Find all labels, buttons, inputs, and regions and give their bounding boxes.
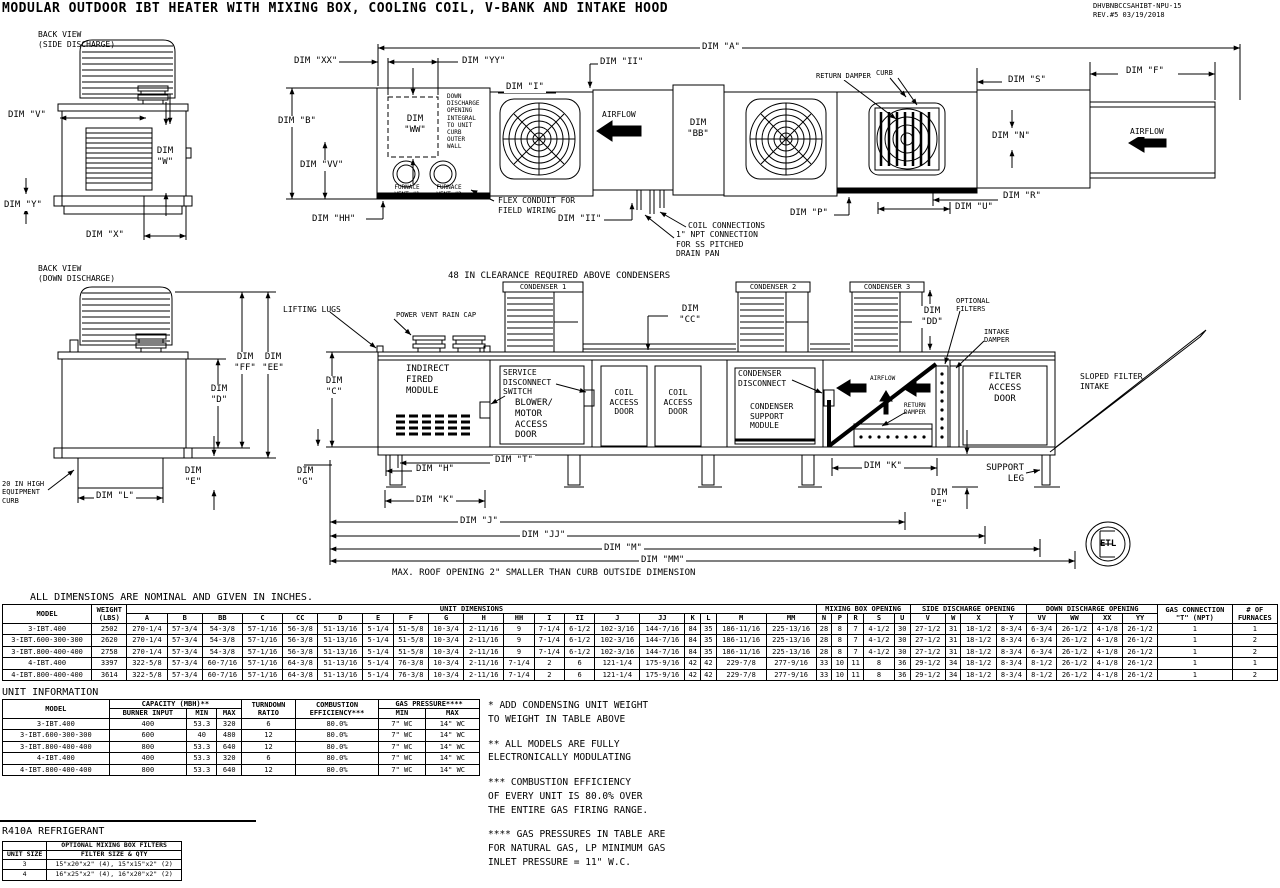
table-cell: 6 [565, 658, 595, 670]
table-cell: 5-1/4 [363, 658, 393, 670]
power-vent-rain-cap-label: POWER VENT RAIN CAP [396, 311, 476, 319]
refrigerant-label: R410A REFRIGERANT [2, 826, 104, 838]
column-header: YY [1122, 614, 1157, 623]
table-cell: 480 [217, 730, 242, 742]
dim-label-i: DIM "I" [504, 82, 546, 93]
table-cell: 26-1/2 [1122, 646, 1157, 658]
table-cell: 84 [685, 623, 701, 635]
table-cell: 8-1/2 [1027, 669, 1057, 681]
column-header: DOWN DISCHARGE OPENING [1027, 605, 1158, 614]
coil-access-door-1-label: COIL ACCESS DOOR [602, 388, 646, 417]
airflow-label-1: AIRFLOW [600, 110, 638, 120]
curb-height-note: 20 IN HIGH EQUIPMENT CURB [2, 480, 44, 505]
column-header: GAS PRESSURE**** [379, 700, 480, 709]
table-cell: 40 [187, 730, 217, 742]
table-cell: 7 [848, 635, 864, 647]
table-cell: 3-IBT.800-400-400 [3, 646, 92, 658]
dim-label-f: DIM "F" [1124, 66, 1166, 77]
npt-connection-note: 1" NPT CONNECTION FOR SS PITCHED DRAIN P… [676, 230, 758, 259]
table-cell: 14" WC [425, 753, 479, 765]
table-cell: 800 [109, 764, 186, 776]
column-header [3, 842, 47, 851]
back-side-view-drawing [26, 40, 192, 240]
dim-label-k-left: DIM "K" [414, 495, 456, 506]
table-cell: 11 [848, 669, 864, 681]
column-header: I [534, 614, 564, 623]
table-cell: 26-1/2 [1057, 646, 1092, 658]
table-cell: 56-3/8 [283, 646, 318, 658]
column-header: MIN [379, 709, 426, 718]
table-cell: 7" WC [379, 730, 426, 742]
dim-label-bb: DIM "BB" [678, 118, 718, 140]
table-cell: 57-1/16 [242, 669, 282, 681]
dim-label-x: DIM "X" [84, 230, 126, 241]
table-cell: 3-IBT.400 [3, 718, 110, 730]
table-cell: 8-3/4 [996, 646, 1026, 658]
column-header: II [565, 614, 595, 623]
table-cell: 277-9/16 [766, 669, 816, 681]
table-cell: 8-1/2 [1027, 658, 1057, 670]
table-cell: 14" WC [425, 718, 479, 730]
airflow-up-arrow-icon [880, 391, 892, 414]
table-cell: 320 [217, 718, 242, 730]
table-cell: 27-1/2 [910, 646, 945, 658]
table-cell: 57-1/16 [242, 635, 282, 647]
table-cell: 7-1/4 [504, 669, 534, 681]
note-3: *** COMBUSTION EFFICIENCY OF EVERY UNIT … [488, 776, 788, 817]
table-cell: 2502 [92, 623, 127, 635]
column-header: WW [1057, 614, 1092, 623]
dim-label-ii-top: DIM "II" [598, 57, 645, 68]
table-cell: 10 [832, 669, 848, 681]
column-header: MAX [425, 709, 479, 718]
table-cell: 270-1/4 [127, 635, 167, 647]
column-header: E [363, 614, 393, 623]
dim-label-d: DIM "D" [202, 384, 236, 406]
table-cell: 322-5/8 [127, 658, 167, 670]
table-cell: 3 [3, 859, 47, 870]
table-cell: 1 [1232, 658, 1277, 670]
sloped-filter-intake-label: SLOPED FILTER INTAKE [1080, 372, 1143, 391]
column-header: XX [1092, 614, 1122, 623]
return-damper-note: RETURN DAMPER [814, 72, 873, 80]
coil-access-door-2-label: COIL ACCESS DOOR [656, 388, 700, 417]
column-header: MIN [187, 709, 217, 718]
table-cell: 2 [1232, 635, 1277, 647]
dim-label-m: DIM "M" [602, 543, 644, 554]
table-cell: 7-1/4 [534, 646, 564, 658]
dim-label-ii-bottom: DIM "II" [556, 214, 603, 225]
table-cell: 10 [832, 658, 848, 670]
table-cell: 6-3/4 [1027, 635, 1057, 647]
table-cell: 42 [685, 669, 701, 681]
column-header: MIXING BOX OPENING [816, 605, 910, 614]
table-cell: 57-3/4 [167, 658, 202, 670]
table-cell: 53.3 [187, 753, 217, 765]
table-cell: 27-1/2 [910, 623, 945, 635]
table-cell: 8 [832, 646, 848, 658]
column-header: BB [202, 614, 242, 623]
table-cell: 9 [504, 623, 534, 635]
support-leg-label: SUPPORT LEG [984, 463, 1024, 485]
column-header: # OF FURNACES [1232, 605, 1277, 624]
table-cell: 4 [3, 870, 47, 881]
indirect-fired-module-label: INDIRECT FIRED MODULE [406, 364, 449, 396]
table-cell: 53.3 [187, 718, 217, 730]
table-cell: 80.0% [295, 730, 378, 742]
table-cell: 4-1/8 [1092, 658, 1122, 670]
clearance-note: 48 IN CLEARANCE REQUIRED ABOVE CONDENSER… [448, 271, 670, 282]
table-cell: 3614 [92, 669, 127, 681]
table-cell: 1 [1232, 623, 1277, 635]
column-header: MODEL [3, 700, 110, 719]
table-cell: 7 [848, 646, 864, 658]
table-cell: 26-1/2 [1122, 658, 1157, 670]
dim-label-g: DIM "G" [288, 466, 322, 488]
table-cell: 277-9/16 [766, 658, 816, 670]
table-cell: 1 [1158, 646, 1232, 658]
table-cell: 56-3/8 [283, 635, 318, 647]
table-cell: 30 [894, 635, 910, 647]
table-cell: 42 [701, 658, 717, 670]
table-cell: 57-3/4 [167, 669, 202, 681]
table-cell: 3397 [92, 658, 127, 670]
table-cell: 33 [816, 658, 832, 670]
table-cell: 51-13/16 [318, 635, 363, 647]
table-row: 4-IBT.800-400-4003614322-5/857-3/460-7/1… [3, 669, 1278, 681]
optional-filters-table: OPTIONAL MIXING BOX FILTERSUNIT SIZEFILT… [2, 841, 182, 881]
dim-label-hh: DIM "HH" [310, 214, 357, 225]
table-cell: 1 [1158, 635, 1232, 647]
column-header: D [318, 614, 363, 623]
dim-label-c: DIM "C" [317, 376, 351, 398]
column-header: HH [504, 614, 534, 623]
table-cell: 31 [945, 635, 961, 647]
blower-access-door-label: BLOWER/ MOTOR ACCESS DOOR [515, 398, 553, 441]
table-cell: 640 [217, 764, 242, 776]
table-cell: 11 [848, 658, 864, 670]
table-cell: 33 [816, 669, 832, 681]
table-cell: 14" WC [425, 730, 479, 742]
table-cell: 2-11/16 [464, 669, 504, 681]
table-cell: 29-1/2 [910, 658, 945, 670]
table-cell: 7 [848, 623, 864, 635]
column-header: C [242, 614, 282, 623]
table-cell: 10-3/4 [428, 669, 463, 681]
column-header: OPTIONAL MIXING BOX FILTERS [47, 842, 182, 851]
table-cell: 4-IBT.400 [3, 753, 110, 765]
column-header: X [961, 614, 996, 623]
table-cell: 84 [685, 635, 701, 647]
table-cell: 5-1/4 [363, 623, 393, 635]
column-header: U [894, 614, 910, 623]
back-down-view-drawing [48, 287, 276, 510]
table-cell: 4-1/8 [1092, 623, 1122, 635]
table-cell: 18-1/2 [961, 669, 996, 681]
table-cell: 4-1/8 [1092, 635, 1122, 647]
table-cell: 229-7/8 [716, 658, 766, 670]
table-row: 3-IBT.4002502270-1/457-3/454-3/857-1/165… [3, 623, 1278, 635]
table-cell: 4-1/8 [1092, 646, 1122, 658]
condenser-disconnect-label: CONDENSER DISCONNECT [738, 369, 786, 388]
table-cell: 31 [945, 646, 961, 658]
table-cell: 2-11/16 [464, 623, 504, 635]
table-cell: 3-IBT.600-300-300 [3, 730, 110, 742]
drawing-sheet: MODULAR OUTDOOR IBT HEATER WITH MIXING B… [0, 0, 1280, 888]
dim-label-yy: DIM "YY" [460, 56, 507, 67]
etl-mark-label: ETL [1100, 539, 1116, 550]
table-cell: 8-3/4 [996, 669, 1026, 681]
table-cell: 34 [945, 669, 961, 681]
table-cell: 57-3/4 [167, 623, 202, 635]
table-cell: 51-13/16 [318, 646, 363, 658]
table-cell: 53.3 [187, 764, 217, 776]
table-cell: 8 [832, 635, 848, 647]
table-cell: 12 [242, 764, 296, 776]
table-cell: 57-3/4 [167, 646, 202, 658]
table-cell: 18-1/2 [961, 646, 996, 658]
roof-opening-note: MAX. ROOF OPENING 2" SMALLER THAN CURB O… [392, 568, 695, 579]
column-header: A [127, 614, 167, 623]
table-cell: 102-3/16 [595, 646, 640, 658]
table-row: 4-IBT.4003397322-5/857-3/460-7/1657-1/16… [3, 658, 1278, 670]
table-cell: 26-1/2 [1057, 623, 1092, 635]
table-cell: 57-3/4 [167, 635, 202, 647]
table-cell: 26-1/2 [1057, 658, 1092, 670]
table-cell: 8-3/4 [996, 658, 1026, 670]
table-row: 315"x20"x2" (4), 15"x15"x2" (2) [3, 859, 182, 870]
table-cell: 600 [109, 730, 186, 742]
service-disconnect-label: SERVICE DISCONNECT SWITCH [503, 368, 551, 397]
table-cell: 6 [242, 753, 296, 765]
table-row: 3-IBT.600-300-300600404801280.0%7" WC14"… [3, 730, 480, 742]
column-header: JJ [640, 614, 685, 623]
airflow-arrow-icon [1129, 134, 1166, 152]
table-cell: 144-7/16 [640, 646, 685, 658]
table-cell: 3-IBT.400 [3, 623, 92, 635]
table-cell: 18-1/2 [961, 658, 996, 670]
dim-label-v: DIM "V" [6, 110, 48, 121]
table-cell: 6-3/4 [1027, 646, 1057, 658]
table-cell: 4-IBT.400 [3, 658, 92, 670]
table-cell: 29-1/2 [910, 669, 945, 681]
column-header: WEIGHT (LBS) [92, 605, 127, 624]
column-header: H [464, 614, 504, 623]
dim-label-t: DIM "T" [493, 455, 535, 466]
filter-access-door-label: FILTER ACCESS DOOR [976, 372, 1034, 404]
airflow-arrow-icon [903, 380, 930, 396]
table-cell: 51-13/16 [318, 623, 363, 635]
table-cell: 400 [109, 718, 186, 730]
table-cell: 102-3/16 [595, 623, 640, 635]
table-cell: 4-IBT.800-400-400 [3, 764, 110, 776]
table-cell: 2 [1232, 646, 1277, 658]
table-cell: 175-9/16 [640, 669, 685, 681]
table-cell: 4-1/2 [864, 646, 895, 658]
condenser-support-module-label: CONDENSER SUPPORT MODULE [750, 402, 793, 431]
dim-label-ee: DIM "EE" [256, 352, 290, 374]
dim-label-ww: DIM "WW" [395, 114, 435, 136]
column-header: UNIT DIMENSIONS [127, 605, 816, 614]
down-discharge-note: DOWN DISCHARGE OPENING INTEGRAL TO UNIT … [447, 93, 493, 151]
dim-label-a: DIM "A" [700, 42, 742, 53]
table-cell: 4-1/2 [864, 623, 895, 635]
table-cell: 26-1/2 [1057, 635, 1092, 647]
table-cell: 6-3/4 [1027, 623, 1057, 635]
note-4: **** GAS PRESSURES IN TABLE ARE FOR NATU… [488, 828, 788, 869]
column-header: L [701, 614, 717, 623]
table-cell: 6-1/2 [565, 623, 595, 635]
table-cell: 60-7/16 [202, 669, 242, 681]
table-cell: 56-3/8 [283, 623, 318, 635]
table-cell: 4-1/2 [864, 635, 895, 647]
dim-label-mm: DIM "MM" [639, 555, 686, 566]
dim-label-j: DIM "J" [458, 516, 500, 527]
table-cell: 54-3/8 [202, 646, 242, 658]
table-cell: 144-7/16 [640, 635, 685, 647]
doc-number: DHVBNBCCSAHIBT-NPU-15 [1093, 2, 1182, 10]
table-cell: 80.0% [295, 741, 378, 753]
table-cell: 322-5/8 [127, 669, 167, 681]
table-cell: 400 [109, 753, 186, 765]
footnotes: * ADD CONDENSING UNIT WEIGHT TO WEIGHT I… [488, 699, 788, 881]
table-cell: 9 [504, 635, 534, 647]
table-cell: 64-3/8 [283, 669, 318, 681]
furnace-vent-1-label: FURNACE VENT #1 [388, 184, 426, 198]
table-cell: 2 [534, 658, 564, 670]
table-cell: 76-3/8 [393, 669, 428, 681]
table-cell: 3-IBT.800-400-400 [3, 741, 110, 753]
condenser-1-label: CONDENSER 1 [503, 283, 583, 291]
table-cell: 7" WC [379, 718, 426, 730]
table-cell: 35 [701, 623, 717, 635]
table-cell: 8 [864, 669, 895, 681]
table-cell: 2 [1232, 669, 1277, 681]
table-cell: 6-1/2 [565, 635, 595, 647]
column-header: K [685, 614, 701, 623]
dim-label-s: DIM "S" [1006, 75, 1048, 86]
table-cell: 10-3/4 [428, 635, 463, 647]
table-cell: 7" WC [379, 741, 426, 753]
column-header: P [832, 614, 848, 623]
table-cell: 54-3/8 [202, 635, 242, 647]
table-cell: 9 [504, 646, 534, 658]
condenser-2-label: CONDENSER 2 [736, 283, 810, 291]
table-cell: 4-1/8 [1092, 669, 1122, 681]
column-header: FILTER SIZE & QTY [47, 850, 182, 859]
table-cell: 18-1/2 [961, 623, 996, 635]
table-cell: 8-3/4 [996, 623, 1026, 635]
table-cell: 121-1/4 [595, 658, 640, 670]
table-cell: 2-11/16 [464, 646, 504, 658]
table-cell: 30 [894, 623, 910, 635]
table-cell: 57-1/16 [242, 623, 282, 635]
table-cell: 28 [816, 623, 832, 635]
table-cell: 121-1/4 [595, 669, 640, 681]
table-cell: 51-5/8 [393, 646, 428, 658]
table-cell: 28 [816, 635, 832, 647]
table-cell: 8 [864, 658, 895, 670]
dim-label-dd: DIM "DD" [912, 306, 952, 328]
table-cell: 320 [217, 753, 242, 765]
column-header: MAX [217, 709, 242, 718]
column-header: VV [1027, 614, 1057, 623]
table-cell: 270-1/4 [127, 646, 167, 658]
table-cell: 60-7/16 [202, 658, 242, 670]
table-cell: 27-1/2 [910, 635, 945, 647]
table-row: 4-IBT.40040053.3320680.0%7" WC14" WC [3, 753, 480, 765]
airflow-label-2: AIRFLOW [1128, 127, 1166, 137]
table-row: 3-IBT.800-400-4002758270-1/457-3/454-3/8… [3, 646, 1278, 658]
dim-label-r: DIM "R" [1001, 191, 1043, 202]
dim-label-y: DIM "Y" [2, 200, 44, 211]
table-row: 3-IBT.800-400-40080053.36401280.0%7" WC1… [3, 741, 480, 753]
table-cell: 57-1/16 [242, 658, 282, 670]
dim-label-l: DIM "L" [94, 491, 136, 502]
dim-label-jj: DIM "JJ" [520, 530, 567, 541]
airflow-arrow-icon [597, 121, 641, 141]
table-cell: 225-13/16 [766, 635, 816, 647]
column-header: UNIT SIZE [3, 850, 47, 859]
table-cell: 42 [701, 669, 717, 681]
dim-label-w: DIM "W" [148, 146, 182, 168]
dim-label-b: DIM "B" [276, 116, 318, 127]
column-header: R [848, 614, 864, 623]
back-down-view-title: BACK VIEW (DOWN DISCHARGE) [38, 264, 115, 283]
table-cell: 80.0% [295, 764, 378, 776]
table-cell: 2 [534, 669, 564, 681]
column-header: N [816, 614, 832, 623]
dimensions-caption: ALL DIMENSIONS ARE NOMINAL AND GIVEN IN … [30, 592, 313, 604]
flex-conduit-note: FLEX CONDUIT FOR FIELD WIRING [498, 196, 575, 215]
table-cell: 35 [701, 635, 717, 647]
table-cell: 7-1/4 [504, 658, 534, 670]
table-cell: 57-1/16 [242, 646, 282, 658]
unit-information-table: MODELCAPACITY (MBH)**TURNDOWN RATIOCOMBU… [2, 699, 480, 776]
table-cell: 2758 [92, 646, 127, 658]
back-side-view-title: BACK VIEW (SIDE DISCHARGE) [38, 30, 115, 49]
table-cell: 51-13/16 [318, 669, 363, 681]
dim-label-u: DIM "U" [953, 202, 995, 213]
airflow-label-3: AIRFLOW [868, 375, 897, 382]
column-header: Y [996, 614, 1026, 623]
table-cell: 36 [894, 669, 910, 681]
table-cell: 31 [945, 623, 961, 635]
table-cell: 80.0% [295, 753, 378, 765]
dim-label-e-left: DIM "E" [176, 466, 210, 488]
table-cell: 54-3/8 [202, 623, 242, 635]
column-header: G [428, 614, 463, 623]
table-cell: 80.0% [295, 718, 378, 730]
column-header: J [595, 614, 640, 623]
note-1: * ADD CONDENSING UNIT WEIGHT TO WEIGHT I… [488, 699, 788, 727]
column-header: V [910, 614, 945, 623]
table-cell: 7-1/4 [534, 635, 564, 647]
column-header: COMBUSTION EFFICIENCY*** [295, 700, 378, 719]
table-cell: 225-13/16 [766, 646, 816, 658]
table-cell: 8-3/4 [996, 635, 1026, 647]
dim-label-h: DIM "H" [414, 464, 456, 475]
table-cell: 186-11/16 [716, 646, 766, 658]
table-cell: 35 [701, 646, 717, 658]
dim-label-k-right: DIM "K" [862, 461, 904, 472]
table-cell: 4-IBT.800-400-400 [3, 669, 92, 681]
table-cell: 270-1/4 [127, 623, 167, 635]
table-cell: 1 [1158, 658, 1232, 670]
intake-damper-label: INTAKE DAMPER [984, 328, 1009, 345]
divider-line [0, 820, 256, 822]
table-cell: 7" WC [379, 753, 426, 765]
